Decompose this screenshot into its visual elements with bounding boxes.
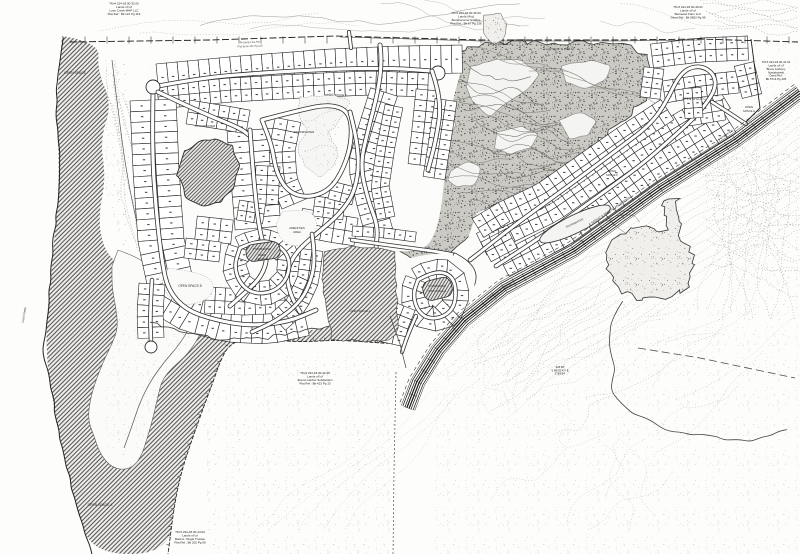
svg-text:TM # 234-18.00-44.00Lands n/f: TM # 234-18.00-44.00Lands n/f ofMark A. … bbox=[174, 530, 206, 545]
svg-text:OPEN SPACE B: OPEN SPACE B bbox=[178, 284, 202, 288]
svg-text:TM # 224-18.00-32.00Lands n/f: TM # 224-18.00-32.00Lands n/f ofLove Cre… bbox=[108, 2, 141, 17]
svg-text:TM # 224-18.00-36.00Lands n/f: TM # 224-18.00-36.00Lands n/f ofBookhamm… bbox=[450, 11, 482, 26]
svg-text:OPEN SPACE C: OPEN SPACE C bbox=[682, 97, 706, 101]
svg-text:Property Line Per: Property Line Per bbox=[240, 40, 260, 45]
svg-text:N 32°52'43" E 1064.52': N 32°52'43" E 1064.52' bbox=[546, 47, 575, 52]
svg-text:STORMWATER: STORMWATER bbox=[294, 130, 315, 134]
svg-text:OPEN SPACE E: OPEN SPACE E bbox=[428, 290, 447, 293]
svg-text:OPEN SPACE A: OPEN SPACE A bbox=[88, 503, 114, 507]
svg-text:TM # 234-18.00-32.00Lands n/f: TM # 234-18.00-32.00Lands n/f ofScenic H… bbox=[297, 371, 333, 386]
svg-text:STORMWATER: STORMWATER bbox=[428, 285, 446, 288]
svg-text:AREA: AREA bbox=[293, 230, 301, 234]
svg-text:SPACE B: SPACE B bbox=[256, 257, 268, 261]
svg-text:OPEN SPACE A: OPEN SPACE A bbox=[488, 42, 512, 46]
svg-text:SPACE F: SPACE F bbox=[606, 173, 618, 177]
svg-text:SPACE A: SPACE A bbox=[743, 109, 755, 113]
svg-text:TM # 224-18.00-40.01Lands n/f: TM # 224-18.00-40.01Lands n/f ofBelmeast… bbox=[671, 5, 706, 20]
svg-text:OPEN SPACE: OPEN SPACE bbox=[64, 71, 87, 75]
svg-text:STORMWATER: STORMWATER bbox=[253, 247, 272, 251]
svg-text:OPEN SPACE A: OPEN SPACE A bbox=[349, 309, 370, 313]
svg-text:STORMWATER: STORMWATER bbox=[195, 124, 216, 128]
svg-text:OPEN SPACE C: OPEN SPACE C bbox=[325, 93, 348, 97]
